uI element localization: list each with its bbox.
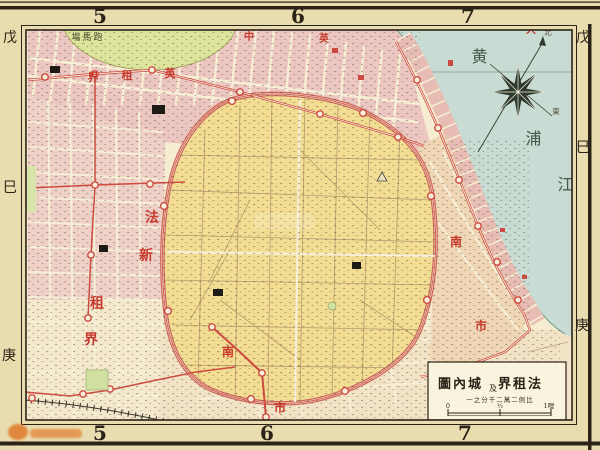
- svg-text:法: 法: [145, 209, 159, 226]
- svg-text:租: 租: [90, 295, 104, 312]
- svg-text:南: 南: [450, 234, 462, 249]
- svg-text:租: 租: [122, 69, 133, 82]
- svg-text:英: 英: [318, 32, 330, 45]
- map-page: 塲馬跑 黄 浦 江 北 東 界 租 英 中 英 大 法 新 租 界 南 市 南 …: [0, 0, 600, 450]
- grid-col-top-5: 5: [93, 4, 107, 28]
- svg-text:市: 市: [274, 400, 286, 415]
- svg-text:南: 南: [222, 344, 234, 359]
- grid-col-bottom-7: 7: [458, 421, 472, 445]
- grid-row-right-wu: 戊: [576, 30, 590, 46]
- grid-col-top-7: 7: [461, 4, 475, 28]
- grid-row-left-geng: 庚: [2, 348, 16, 364]
- grid-row-left-wu: 戊: [3, 30, 17, 46]
- svg-text:中: 中: [244, 30, 254, 43]
- svg-text:新: 新: [139, 247, 153, 264]
- title-cartouche: 圖內城 及 界租法 一之分千二萬二例比 0 ½ 1哩: [428, 362, 566, 420]
- svg-text:界: 界: [88, 71, 99, 84]
- map-title-part-3: 界租法: [498, 376, 543, 392]
- grid-row-right-geng: 庚: [575, 318, 589, 334]
- scale-zero-label: 0: [446, 402, 450, 410]
- svg-text:市: 市: [475, 318, 487, 333]
- map-title-part-1: 圖內城: [438, 376, 483, 392]
- river-name-char-2: 浦: [525, 129, 542, 148]
- scale-mile-label: 1哩: [544, 402, 555, 410]
- racecourse-label: 塲馬跑: [71, 31, 104, 43]
- watermark-center: [254, 213, 314, 230]
- grid-col-bottom-5: 5: [93, 421, 107, 445]
- grid-row-left-si: 巳: [3, 180, 17, 196]
- grid-row-right-si: 巳: [576, 140, 590, 156]
- map-title-part-2: 及: [489, 384, 497, 393]
- svg-text:界: 界: [84, 332, 99, 348]
- compass-east-label: 東: [552, 106, 560, 116]
- scale-half-label: ½: [497, 402, 503, 410]
- map-canvas: 塲馬跑 黄 浦 江 北 東 界 租 英 中 英 大 法 新 租 界 南 市 南 …: [0, 0, 600, 450]
- grid-col-top-6: 6: [291, 4, 305, 28]
- grid-col-bottom-6: 6: [260, 421, 274, 445]
- river-name-char-1: 黄: [471, 47, 488, 66]
- svg-text:英: 英: [164, 66, 177, 80]
